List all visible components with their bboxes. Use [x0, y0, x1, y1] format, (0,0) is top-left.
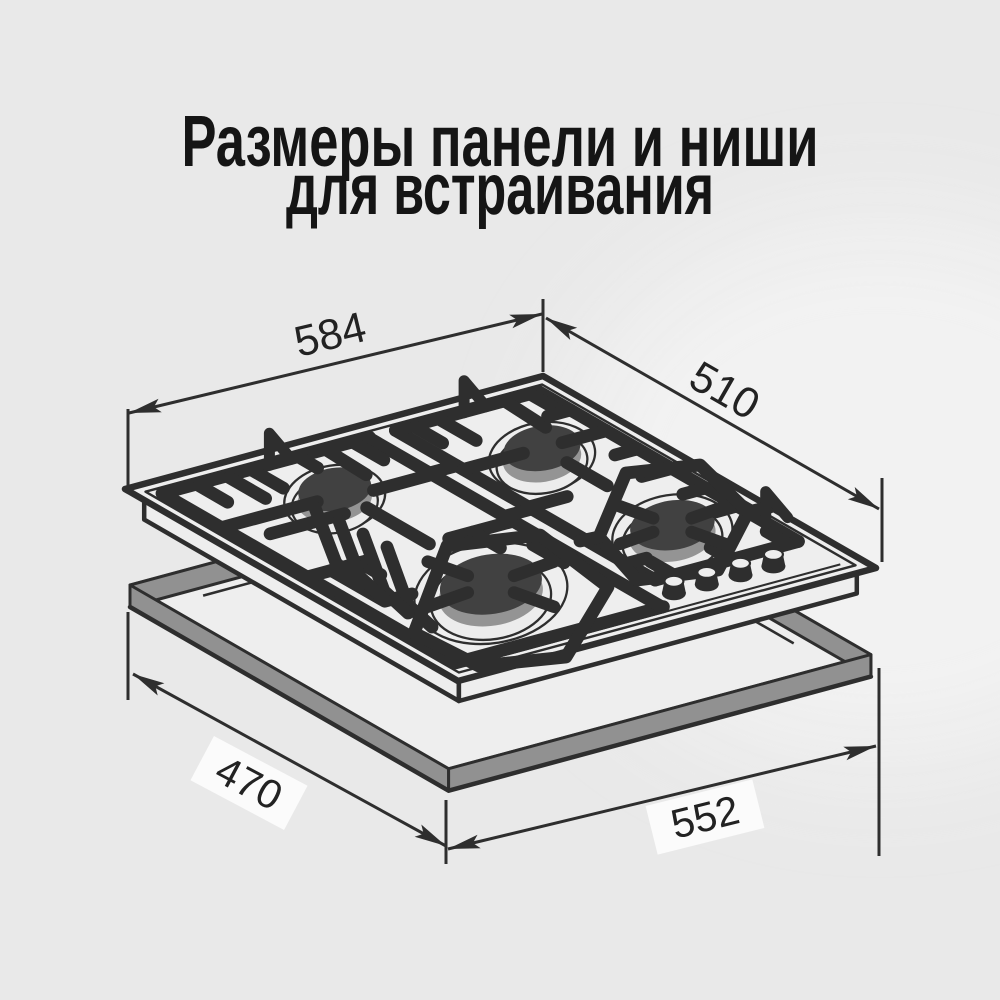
svg-text:для встраивания: для встраивания	[286, 150, 714, 230]
